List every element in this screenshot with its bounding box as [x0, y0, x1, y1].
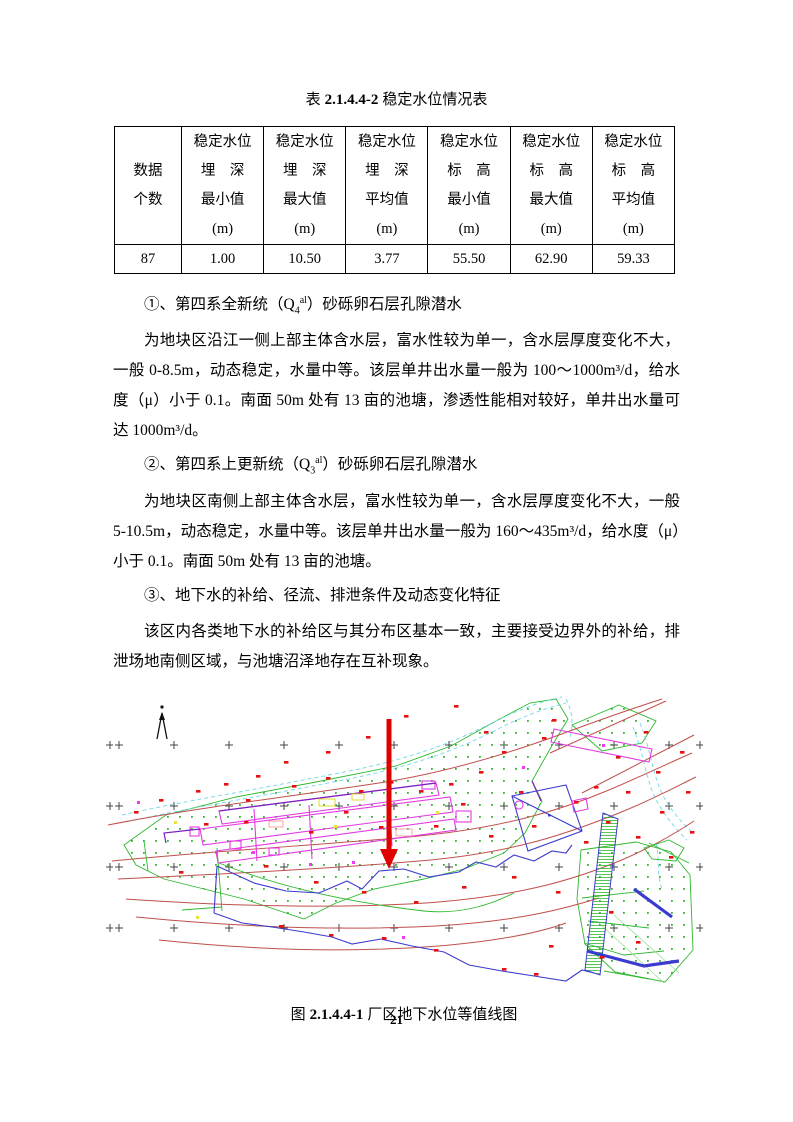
header-elev-min: 稳定水位 标 高 最小值 (m) — [428, 127, 510, 245]
groundwater-contour-map — [104, 693, 704, 993]
header-depth-max: 稳定水位 埋 深 最大值 (m) — [264, 127, 346, 245]
formula-superscript: al — [300, 295, 307, 306]
heading-text: ③、地下水的补给、径流、排泄条件及动态变化特征 — [144, 587, 501, 604]
header-depth-avg: 稳定水位 埋 深 平均值 (m) — [346, 127, 428, 245]
cell-depth-min: 1.00 — [182, 245, 264, 274]
cell-elev-avg: 59.33 — [592, 245, 674, 274]
table-header-row: 数据 个数 稳定水位 埋 深 最小值 (m) 稳定水位 埋 深 最大值 (m) … — [115, 127, 675, 245]
table-caption: 表2.1.4.4-2稳定水位情况表 — [113, 88, 680, 109]
stable-water-level-table: 数据 个数 稳定水位 埋 深 最小值 (m) 稳定水位 埋 深 最大值 (m) … — [114, 126, 675, 274]
table-caption-title: 稳定水位情况表 — [382, 92, 487, 108]
section-3-heading: ③、地下水的补给、径流、排泄条件及动态变化特征 — [113, 577, 680, 617]
section-1-heading: ①、第四系全新统（Q4al）砂砾卵石层孔隙潜水 — [113, 286, 680, 326]
section-2-body: 为地块区南侧上部主体含水层，富水性较为单一，含水层厚度变化不大，一般 5-10.… — [113, 487, 680, 577]
header-depth-min: 稳定水位 埋 深 最小值 (m) — [182, 127, 264, 245]
groundwater-map-figure: 图2.1.4.4-1厂区地下水位等值线图 — [104, 693, 704, 1024]
table-caption-number: 2.1.4.4-2 — [325, 92, 379, 108]
heading-text: ①、第四系全新统（Q — [144, 296, 295, 313]
section-2-heading: ②、第四系上更新统（Q3al）砂砾卵石层孔隙潜水 — [113, 446, 680, 486]
cell-depth-avg: 3.77 — [346, 245, 428, 274]
header-elev-avg: 稳定水位 标 高 平均值 (m) — [592, 127, 674, 245]
heading-text: ）砂砾卵石层孔隙潜水 — [307, 296, 462, 313]
document-page: 表2.1.4.4-2稳定水位情况表 数据 个数 稳定水位 埋 深 最小值 (m)… — [0, 0, 793, 1122]
heading-text: ②、第四系上更新统（Q — [144, 456, 310, 473]
north-arrow-icon — [157, 705, 167, 739]
section-1-body: 为地块区沿江一侧上部主体含水层，富水性较为单一，含水层厚度变化不大，一般 0-8… — [113, 326, 680, 446]
header-elev-max: 稳定水位 标 高 最大值 (m) — [510, 127, 592, 245]
page-number: 21 — [0, 1012, 793, 1028]
heading-text: ）砂砾卵石层孔隙潜水 — [322, 456, 477, 473]
formula-subscript: 3 — [310, 466, 315, 477]
header-data-count: 数据 个数 — [115, 127, 182, 245]
cell-depth-max: 10.50 — [264, 245, 346, 274]
table-caption-prefix: 表 — [306, 92, 321, 108]
cell-elev-max: 62.90 — [510, 245, 592, 274]
cell-data-count: 87 — [115, 245, 182, 274]
section-3-body: 该区内各类地下水的补给区与其分布区基本一致，主要接受边界外的补给，排泄场地南侧区… — [113, 617, 680, 677]
cell-elev-min: 55.50 — [428, 245, 510, 274]
body-text: ①、第四系全新统（Q4al）砂砾卵石层孔隙潜水 为地块区沿江一侧上部主体含水层，… — [113, 286, 680, 677]
formula-subscript: 4 — [295, 305, 300, 316]
table-data-row: 87 1.00 10.50 3.77 55.50 62.90 59.33 — [115, 245, 675, 274]
